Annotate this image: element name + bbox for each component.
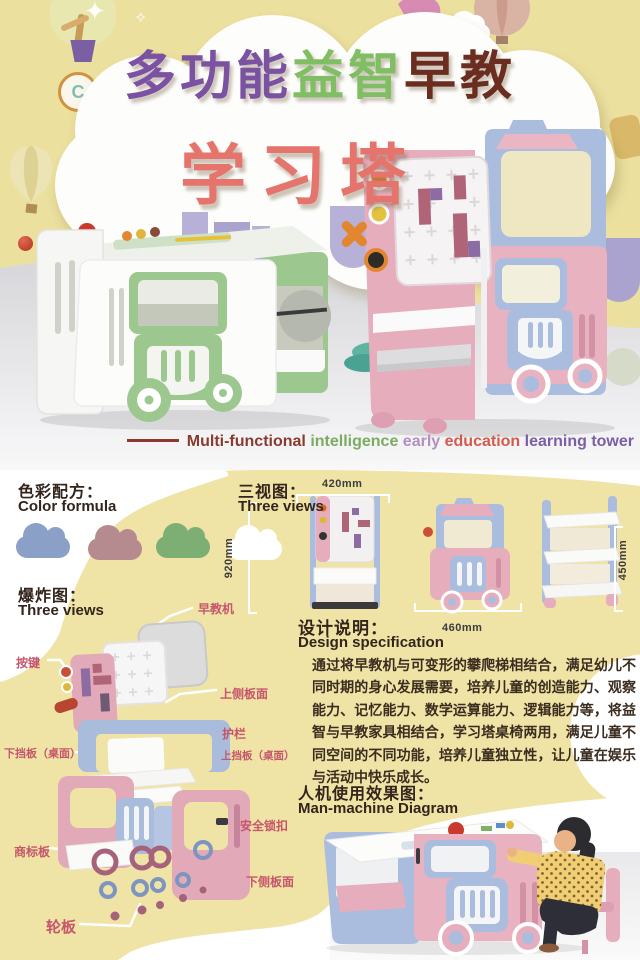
dim-front-width: 420mm xyxy=(322,478,362,490)
dim-back-height-bracket xyxy=(614,526,616,612)
dim-front-width-bracket xyxy=(296,494,390,496)
part-label-guardrail: 护栏 xyxy=(222,725,246,742)
poster-title-line1: 多功能益智早教 xyxy=(0,34,640,109)
title-seg-intelligence: 益智 xyxy=(292,48,404,106)
color-swatch-white xyxy=(228,538,282,560)
subtitle-seg4: education xyxy=(445,433,521,450)
subtitle-seg5: learning tower xyxy=(525,433,634,450)
subtitle-seg3: early xyxy=(403,433,440,450)
exploded-heading-en: Three views xyxy=(18,602,104,619)
part-label-learning-machine: 早教机 xyxy=(198,600,234,617)
part-label-upper-baffle: 上挡板（桌面） xyxy=(221,748,295,763)
hero-section: ✦ ✧ C R xyxy=(0,0,640,470)
part-label-upper-side-panel: 上侧板面 xyxy=(220,685,268,702)
color-swatch-green xyxy=(156,536,210,558)
title-seg-multifunction: 多功能 xyxy=(124,48,292,106)
subtitle-dash xyxy=(127,439,179,442)
dim-front-height: 920mm xyxy=(223,533,235,583)
three-views-heading-en: Three views xyxy=(238,498,324,515)
part-label-wheel-board: 轮板 xyxy=(46,916,76,937)
exploded-diagram xyxy=(20,598,310,958)
design-spec-body: 通过将早教机与可变形的攀爬梯相结合，满足幼儿不同时期的身心发展需要，培养儿童的创… xyxy=(312,654,636,788)
poster-title-line2: 学习塔 xyxy=(0,122,600,218)
part-label-logo-board: 商标板 xyxy=(14,843,50,860)
english-subtitle: Multi-functional intelligence early educ… xyxy=(127,433,634,451)
dim-side-width: 460mm xyxy=(442,622,482,634)
bus-desk-render-green xyxy=(25,200,335,435)
color-swatch-mauve xyxy=(88,538,142,560)
poster: ✦ ✧ C R xyxy=(0,0,640,960)
man-machine-heading-en: Man-machine Diagram xyxy=(298,800,458,817)
part-label-lower-side-panel: 下侧板面 xyxy=(246,873,294,890)
design-spec-heading-en: Design specification xyxy=(298,634,444,651)
dim-side-width-bracket xyxy=(414,610,522,612)
color-formula-heading-en: Color formula xyxy=(18,498,116,515)
title-seg-earlyeducation: 早教 xyxy=(404,48,516,106)
part-label-lower-baffle: 下挡板（桌面） xyxy=(4,745,81,761)
back-view-drawing xyxy=(534,494,626,614)
dim-front-height-bracket xyxy=(248,502,250,614)
orange-x-icon xyxy=(336,216,372,252)
side-view-drawing xyxy=(412,496,524,616)
color-swatch-blue xyxy=(16,536,70,558)
dim-back-height: 450mm xyxy=(617,535,629,585)
part-label-safety-lock: 安全锁扣 xyxy=(240,817,288,834)
info-section: 色彩配方： Color formula 爆炸图： Three views 三视图… xyxy=(0,470,640,960)
subtitle-seg2: intelligence xyxy=(310,433,398,450)
subtitle-seg1: Multi-functional xyxy=(187,433,306,450)
part-label-buttons: 按键 xyxy=(16,654,40,671)
